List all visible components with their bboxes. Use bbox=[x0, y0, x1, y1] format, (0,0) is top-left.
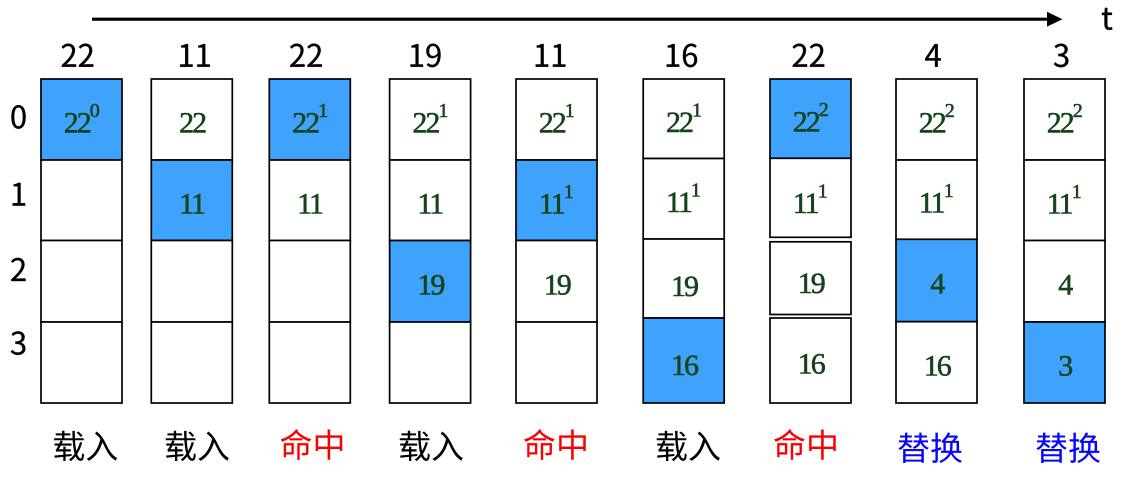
svg-text:22: 22 bbox=[179, 107, 206, 140]
svg-text:4: 4 bbox=[1058, 268, 1073, 301]
svg-text:19: 19 bbox=[798, 267, 825, 300]
svg-text:19: 19 bbox=[544, 268, 571, 301]
svg-text:19: 19 bbox=[671, 270, 698, 303]
svg-text:3: 3 bbox=[1058, 350, 1072, 383]
svg-text:11: 11 bbox=[179, 187, 205, 220]
svg-text:19: 19 bbox=[417, 268, 444, 301]
svg-text:16: 16 bbox=[798, 348, 826, 381]
svg-text:11: 11 bbox=[297, 187, 323, 220]
svg-text:16: 16 bbox=[924, 349, 952, 382]
svg-text:4: 4 bbox=[930, 268, 945, 301]
svg-text:11: 11 bbox=[417, 187, 443, 220]
svg-text:16: 16 bbox=[671, 349, 699, 382]
